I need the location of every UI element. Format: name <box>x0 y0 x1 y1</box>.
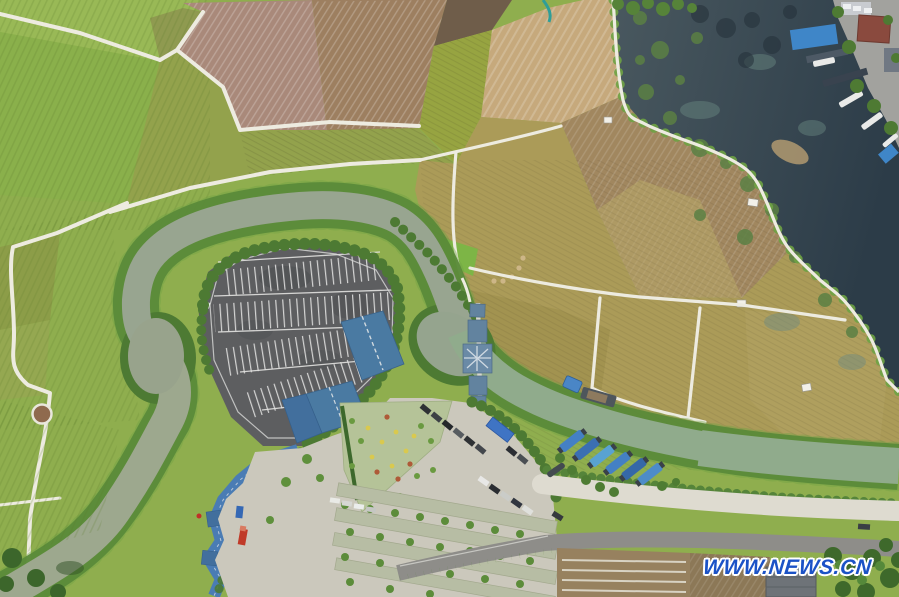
aerial-photo: WWW.NEWS.CN <box>0 0 899 597</box>
news-cn-watermark: WWW.NEWS.CN <box>701 556 872 580</box>
blue-truck <box>235 506 243 519</box>
aerial-photo-canvas <box>0 0 899 597</box>
pavilion-star <box>464 346 491 371</box>
round-lookout-platform <box>33 405 52 424</box>
car-on-road <box>858 524 870 530</box>
